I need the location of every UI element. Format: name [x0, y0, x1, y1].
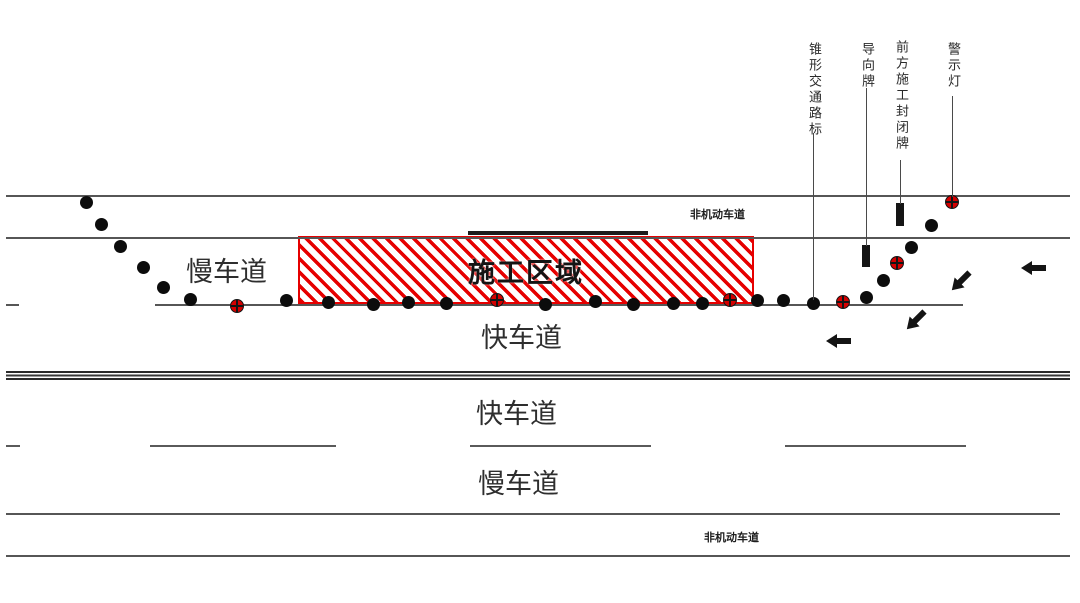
guide-sign-callout-label: 导向牌: [858, 42, 877, 90]
construction-traffic-diagram: 施工区域 非机动车道 慢车道 快车道 快车道 慢车道 非机动车道 锥形交通路标导…: [0, 0, 1080, 603]
top-lane-divider-dash-left: [6, 304, 19, 306]
closure-sign-callout-leader-line: [900, 160, 901, 204]
traffic-cone-icon: [751, 294, 764, 307]
traffic-cone-icon: [137, 261, 150, 274]
top-slow-lane-label: 慢车道: [186, 250, 267, 289]
warning-light-callout-label: 警示灯: [944, 42, 963, 90]
traffic-cone-icon: [905, 241, 918, 254]
bottom-nonmotor-divider-line: [6, 513, 1060, 515]
warning-light-icon: [836, 295, 850, 309]
guide-sign-callout-leader-line: [866, 88, 867, 246]
traffic-cone-icon: [367, 298, 380, 311]
warning-light-callout-leader-line: [952, 96, 953, 197]
traffic-direction-arrow-icon: [1019, 258, 1049, 278]
traffic-cone-icon: [440, 297, 453, 310]
bottom-lane-divider-dash: [150, 445, 336, 447]
bottom-nonmotor-lane-label: 非机动车道: [704, 529, 759, 545]
warning-light-icon: [230, 299, 244, 313]
closure-sign-callout-label: 前方施工封闭牌: [892, 40, 911, 152]
guide-sign-board: [862, 245, 870, 267]
traffic-direction-arrow-icon: [824, 331, 854, 351]
construction-zone: 施工区域: [298, 236, 754, 304]
traffic-cone-icon: [627, 298, 640, 311]
closure-sign-board: [896, 203, 904, 226]
traffic-cone-callout-leader-line: [813, 133, 814, 300]
bottom-fast-lane-label: 快车道: [476, 392, 557, 431]
traffic-cone-icon: [877, 274, 890, 287]
traffic-direction-arrow-icon: [898, 302, 933, 337]
construction-zone-label: 施工区域: [468, 251, 584, 290]
top-road-edge-line: [6, 195, 1070, 197]
bottom-lane-divider-dash: [470, 445, 651, 447]
top-nonmotor-lane-label: 非机动车道: [690, 206, 745, 222]
warning-light-icon: [890, 256, 904, 270]
traffic-cone-icon: [402, 296, 415, 309]
top-nonmotor-divider-line: [6, 237, 1070, 239]
center-double-line: [6, 371, 1070, 380]
traffic-cone-icon: [322, 296, 335, 309]
traffic-cone-icon: [777, 294, 790, 307]
traffic-cone-icon: [667, 297, 680, 310]
top-fast-lane-label: 快车道: [481, 316, 562, 355]
bottom-lane-divider-dash: [785, 445, 966, 447]
traffic-cone-callout-label: 锥形交通路标: [805, 42, 824, 138]
traffic-cone-icon: [114, 240, 127, 253]
warning-light-icon: [490, 293, 504, 307]
traffic-cone-icon: [925, 219, 938, 232]
traffic-cone-icon: [589, 295, 602, 308]
construction-barrier-bar: [468, 231, 648, 235]
bottom-road-edge-line: [6, 555, 1070, 557]
bottom-slow-lane-label: 慢车道: [478, 462, 559, 501]
traffic-cone-icon: [95, 218, 108, 231]
traffic-cone-icon: [696, 297, 709, 310]
traffic-cone-icon: [280, 294, 293, 307]
traffic-direction-arrow-icon: [943, 263, 978, 298]
traffic-cone-icon: [539, 298, 552, 311]
warning-light-icon: [723, 293, 737, 307]
traffic-cone-icon: [157, 281, 170, 294]
bottom-lane-divider-dash: [6, 445, 20, 447]
traffic-cone-icon: [184, 293, 197, 306]
traffic-cone-icon: [860, 291, 873, 304]
traffic-cone-icon: [80, 196, 93, 209]
